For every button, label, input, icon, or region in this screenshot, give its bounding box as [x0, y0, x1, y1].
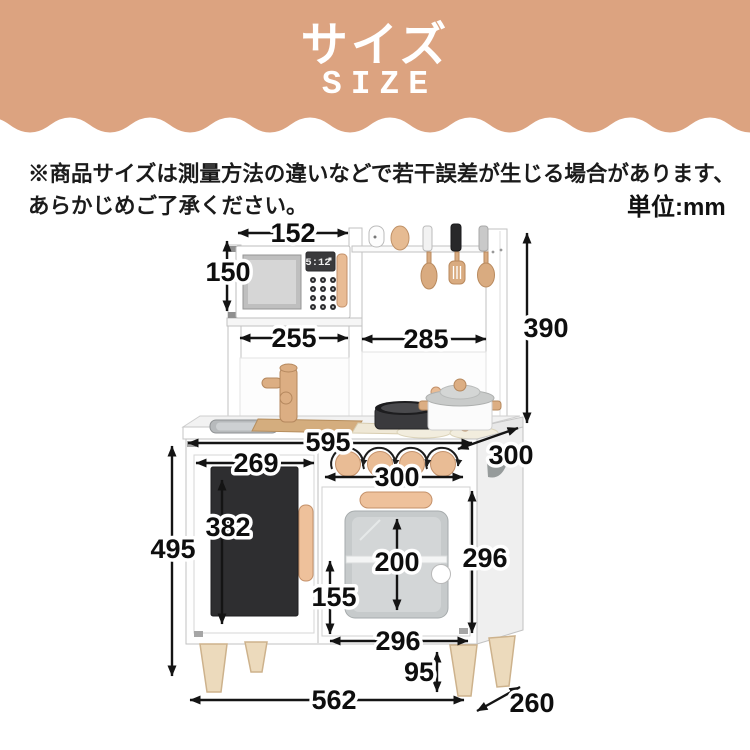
microwave-window-glass: [248, 260, 296, 304]
kitchen-dimension-diagram: 5:12: [0, 0, 750, 750]
dim-leg-height: 95: [404, 652, 437, 692]
svg-text:296: 296: [462, 543, 507, 573]
svg-text:260: 260: [509, 688, 554, 718]
spoon-handle: [484, 252, 488, 264]
pot-lid-knob: [454, 379, 466, 391]
svg-text:155: 155: [311, 582, 356, 612]
toy-microwave: 5:12: [236, 246, 350, 318]
dim-left-bay-width: 255: [240, 323, 348, 353]
screw-dot: [492, 251, 495, 254]
microwave-display-dot: [329, 258, 332, 261]
faucet-cap: [280, 364, 297, 372]
screw-dot: [500, 249, 503, 252]
knife-handle-gray: [479, 226, 488, 251]
leg-front-left: [200, 644, 227, 692]
hutch-middle-panel: [349, 228, 362, 432]
shaker-hole: [374, 236, 377, 239]
svg-text:296: 296: [375, 626, 420, 656]
salt-shaker: [369, 226, 384, 247]
leg-back-right: [489, 636, 515, 687]
svg-text:150: 150: [205, 257, 250, 287]
left-door-handle: [299, 505, 313, 581]
svg-text:300: 300: [374, 462, 419, 492]
metal-bracket: [194, 631, 203, 637]
stove-knob: [431, 452, 456, 477]
pepper-shaker: [391, 226, 409, 250]
svg-text:495: 495: [150, 534, 195, 564]
dim-hutch-height: 390: [523, 233, 568, 423]
dim-base-depth: 260: [477, 687, 555, 718]
dim-base-width: 562: [190, 685, 464, 715]
svg-text:152: 152: [270, 218, 315, 248]
legs: [200, 636, 515, 696]
svg-text:595: 595: [305, 427, 350, 457]
oven-latch-knob: [432, 565, 451, 584]
metal-bracket: [459, 628, 468, 634]
dim-microwave-width: 152: [238, 218, 348, 248]
microwave-clock-text: 5:12: [305, 257, 330, 269]
svg-text:200: 200: [374, 547, 419, 577]
size-infographic: サイズ SIZE ※商品サイズは測量方法の違いなどで若干誤差が生じる場合がありま…: [0, 0, 750, 750]
faucet-spout: [262, 378, 282, 388]
oven-handle: [360, 492, 432, 508]
dim-right-bay-width: 285: [362, 324, 486, 354]
svg-text:285: 285: [403, 324, 448, 354]
leg-back-left: [245, 642, 267, 672]
faucet-knob: [280, 392, 292, 404]
svg-text:269: 269: [233, 448, 278, 478]
utensil-rail: [352, 246, 488, 252]
knife-handle-white: [423, 226, 432, 251]
spatula-icon: [421, 263, 437, 289]
svg-text:300: 300: [488, 440, 533, 470]
svg-text:255: 255: [271, 323, 316, 353]
svg-text:562: 562: [311, 685, 356, 715]
microwave-handle: [337, 254, 347, 307]
knife-handle-black: [451, 224, 461, 251]
svg-text:390: 390: [523, 313, 568, 343]
svg-text:382: 382: [205, 512, 250, 542]
shelf-accessories: [369, 224, 495, 289]
spoon-icon: [478, 263, 495, 287]
leg-front-right: [450, 645, 477, 696]
svg-text:95: 95: [404, 657, 434, 687]
hanging-utensils: [421, 252, 495, 289]
